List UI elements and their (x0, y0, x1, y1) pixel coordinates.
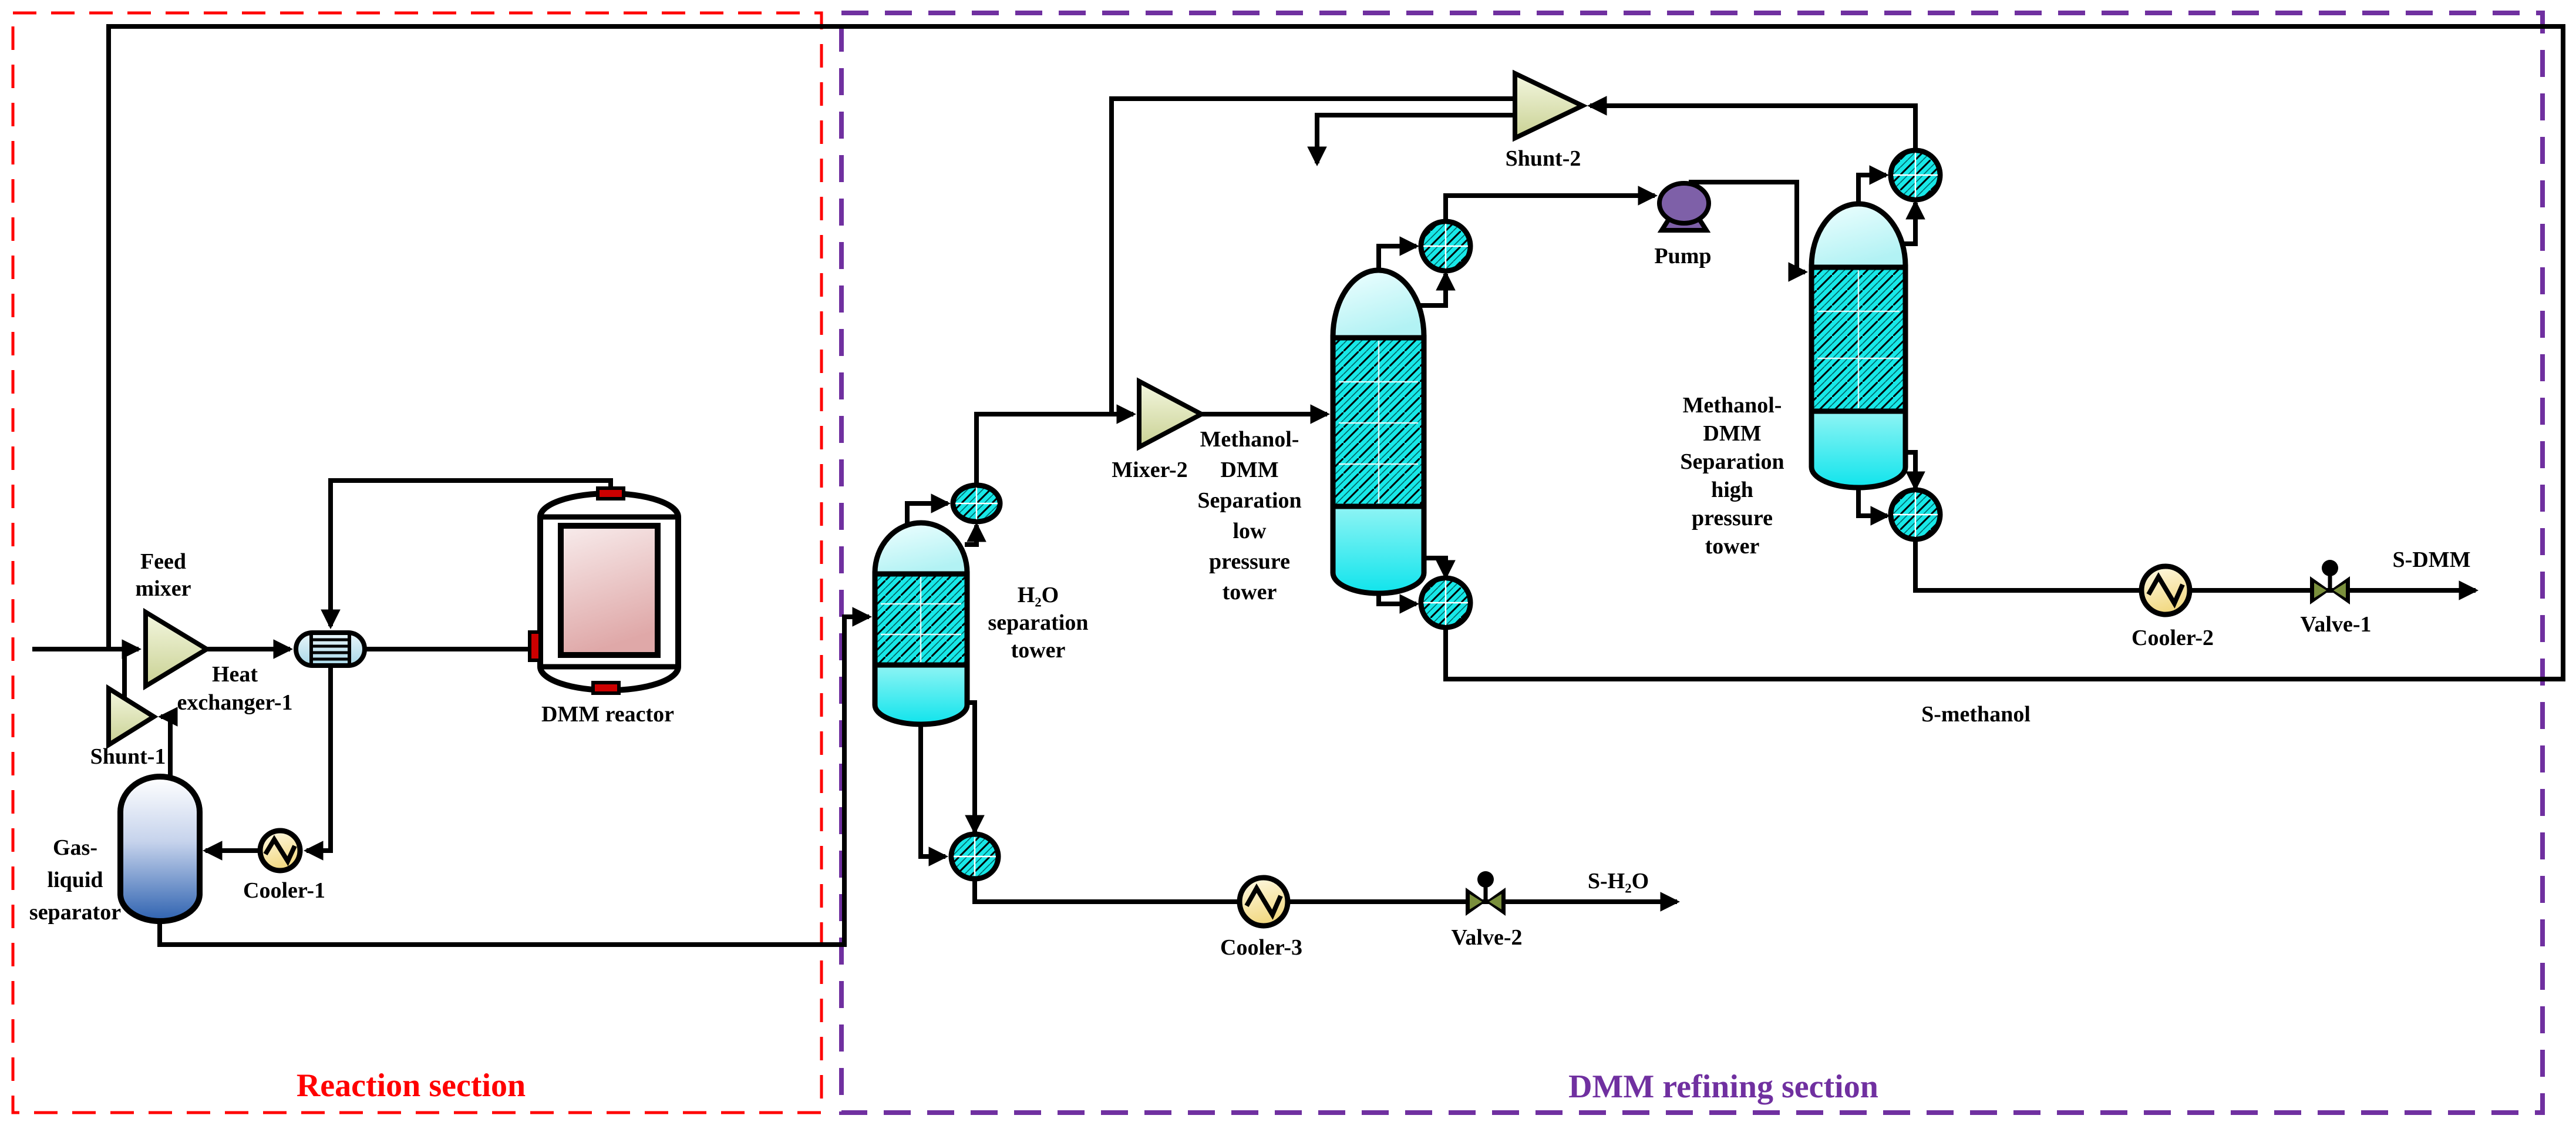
stream-labels: S-DMM S-methanol S-H₂O (1588, 547, 2471, 893)
reaction-section-label: Reaction section (297, 1067, 526, 1104)
heat-exchanger-shell (296, 633, 365, 666)
valve-1-ball (2322, 560, 2338, 576)
separator-vessel (120, 777, 200, 921)
reactor-core (561, 526, 658, 655)
shunt-2-label: Shunt-2 (1506, 146, 1581, 171)
pipe-lp-distillate-to-pump (1446, 196, 1655, 221)
s-methanol-label: S-methanol (1921, 702, 2031, 727)
pipe-h2o-reboiler-left (921, 723, 945, 856)
valve-2-ball (1477, 871, 1494, 888)
dmm-reactor (530, 488, 678, 693)
pipe-h2o-condenser-reflux (965, 525, 976, 545)
hp-tower-label-6: tower (1705, 534, 1760, 559)
hp-tower-bottoms (1811, 411, 1905, 488)
shunt-1 (109, 688, 154, 745)
reactor-side-nozzle (530, 632, 540, 660)
lp-tower-label-4: low (1233, 519, 1267, 543)
lp-tower-label-3: Separation (1197, 488, 1301, 513)
hp-tower-label-2: DMM (1703, 421, 1761, 446)
hp-tower-label-5: pressure (1692, 506, 1773, 530)
cooler-2-label: Cooler-2 (2131, 626, 2214, 650)
pump-icon (1659, 183, 1709, 223)
lp-condenser (1421, 221, 1470, 271)
pipe-lp-condenser-reflux (1419, 274, 1446, 305)
mixer-2 (1139, 381, 1201, 447)
hp-tower-label-1: Methanol- (1683, 393, 1782, 418)
h2o-tower-top (875, 523, 967, 574)
pump-label: Pump (1654, 244, 1711, 268)
heat-exchanger-label-2: exchanger-1 (177, 690, 293, 715)
feed-mixer-label-1: Feed (140, 549, 186, 574)
shunt-1-icon (109, 688, 154, 745)
lp-reboiler (1421, 578, 1470, 627)
hp-tower-label-4: high (1711, 478, 1753, 502)
hp-tower-top (1811, 204, 1905, 267)
mixer-2-icon (1139, 381, 1201, 447)
lp-tower-label-1: Methanol- (1200, 427, 1299, 452)
dmm-reactor-label: DMM reactor (541, 702, 674, 727)
pipe-h2o-distillate-to-mixer2 (976, 414, 1133, 486)
pipe-hp-distillate-to-shunt2 (1590, 106, 1915, 150)
cooler-2 (2141, 566, 2190, 614)
pipe-sh2o-product (975, 878, 1677, 902)
lp-tower-top (1333, 270, 1424, 338)
pipe-h2o-reboiler-top (967, 703, 975, 832)
h2o-tower-bottoms (875, 665, 967, 724)
pipes (32, 26, 2563, 945)
s-dmm-label: S-DMM (2393, 547, 2471, 572)
h2o-condenser (953, 485, 1000, 522)
lp-tower-label-5: pressure (1209, 549, 1290, 574)
feed-mixer (146, 612, 207, 686)
equipment-labels: Feed mixer Shunt-1 Heat exchanger-1 DMM … (29, 146, 2372, 960)
s-h2o-label: S-H₂O (1588, 869, 1649, 893)
reactor-top-nozzle (598, 488, 624, 499)
shunt-2 (1515, 73, 1582, 138)
feed-mixer-label-2: mixer (136, 576, 191, 601)
shunt-2-icon (1515, 73, 1582, 138)
feed-mixer-icon (146, 612, 207, 686)
h2o-tower-label-3: tower (1011, 638, 1066, 663)
refining-section-label: DMM refining section (1568, 1069, 1878, 1105)
separator-label-3: separator (29, 900, 121, 925)
pipe-lp-reboiler-top (1424, 558, 1446, 577)
lp-tower-label-6: tower (1223, 580, 1277, 604)
lp-tower-label-2: DMM (1220, 458, 1278, 482)
hp-condenser (1891, 150, 1940, 200)
pipe-hp-condenser-reflux (1902, 203, 1915, 244)
section-labels: Reaction section DMM refining section (297, 1067, 1878, 1105)
pipe-hx-bottom-to-cooler1 (307, 666, 331, 851)
valve-2 (1466, 871, 1506, 916)
separator-label-2: liquid (47, 868, 103, 892)
heat-exchanger-label-1: Heat (212, 662, 258, 687)
cooler-1 (260, 831, 300, 871)
hp-reboiler (1891, 490, 1940, 539)
lp-tower-bottoms (1333, 506, 1424, 593)
reactor-bottom-nozzle (593, 683, 619, 693)
pipe-hp-reboiler-left (1858, 486, 1887, 516)
cooler-1-label: Cooler-1 (243, 878, 325, 903)
pipe-shunt2-lower-out (1317, 115, 1515, 163)
refining-section-box (841, 13, 2543, 1113)
hp-tower (1811, 150, 1940, 539)
h2o-separation-tower (875, 485, 1000, 879)
h2o-tower-label-2: separation (988, 610, 1089, 635)
h2o-tower-label-1: H₂O (1018, 583, 1059, 607)
cooler-3-label: Cooler-3 (1220, 935, 1302, 960)
pipe-sdmm-product (1915, 540, 2476, 590)
cooler-3 (1240, 878, 1288, 926)
valve-1-label: Valve-1 (2300, 612, 2371, 637)
hp-tower-label-3: Separation (1680, 449, 1784, 474)
separator-label-1: Gas- (53, 835, 97, 860)
lp-tower (1333, 221, 1470, 627)
pump (1659, 183, 1709, 230)
gas-liquid-separator (120, 777, 200, 921)
h2o-reboiler (951, 834, 998, 879)
process-flow-diagram: Feed mixer Shunt-1 Heat exchanger-1 DMM … (0, 0, 2576, 1132)
mixer-2-label: Mixer-2 (1112, 458, 1187, 482)
heat-exchanger-1 (296, 633, 365, 666)
reaction-section-box (13, 13, 821, 1113)
valve-1 (2310, 560, 2350, 604)
valve-2-label: Valve-2 (1451, 925, 1522, 950)
shunt-1-label: Shunt-1 (90, 744, 166, 769)
